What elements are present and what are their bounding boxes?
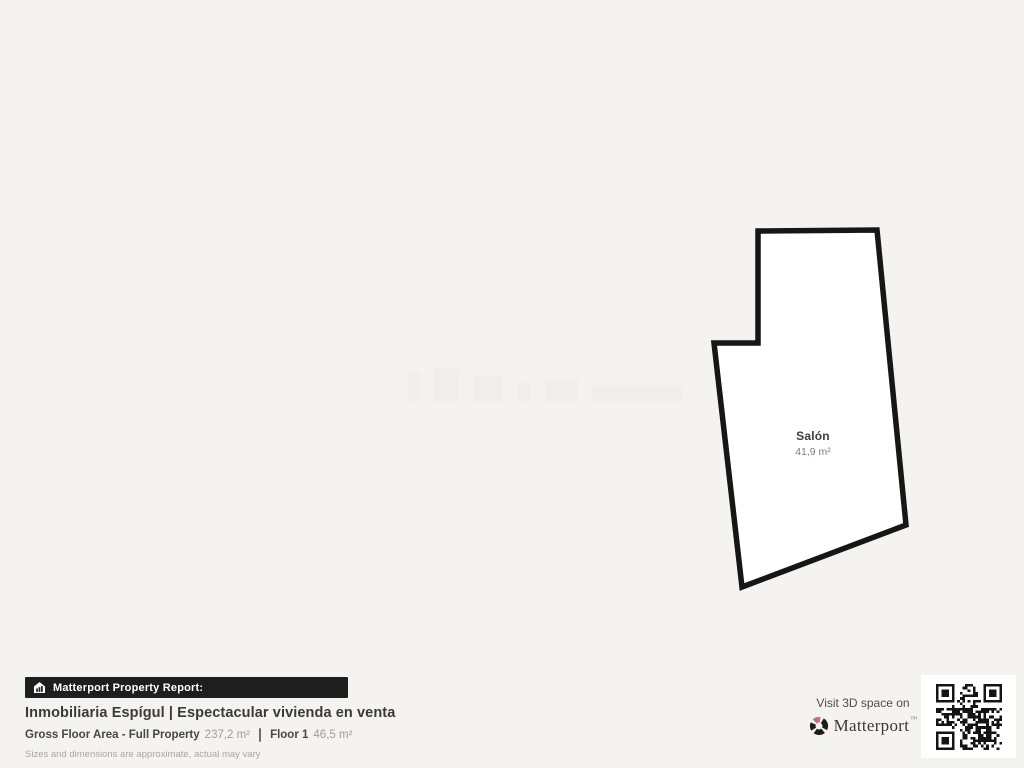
room-area: 41,9 m² [795, 446, 831, 459]
report-badge-label: Matterport Property Report: [53, 682, 203, 694]
qr-canvas [936, 684, 1002, 750]
floor-plan-page: Salón 41,9 m² Matterport Property Report… [0, 0, 1024, 768]
property-title: Inmobiliaria Espígul | Espectacular vivi… [25, 705, 445, 721]
trademark-mark: ™ [910, 715, 917, 723]
stat-value-gross-floor-area: 237,2 m² [205, 729, 250, 741]
matterport-logo-icon [809, 716, 829, 736]
stat-value-floor-1: 46,5 m² [313, 729, 352, 741]
matterport-brand: Matterport™ [808, 716, 918, 736]
room-name: Salón [795, 429, 831, 444]
visit-3d-text: Visit 3D space on [808, 696, 918, 710]
room-label-salon: Salón 41,9 m² [795, 429, 831, 459]
room-outline-salon [714, 230, 906, 587]
report-info: Matterport Property Report: Inmobiliaria… [25, 677, 445, 760]
qr-code [921, 675, 1016, 758]
stat-label-gross-floor-area: Gross Floor Area - Full Property [25, 729, 200, 741]
matterport-cta: Visit 3D space on Matterport™ [808, 696, 918, 736]
stats-divider [259, 728, 261, 742]
matterport-wordmark: Matterport™ [834, 716, 918, 736]
house-chart-icon [33, 681, 46, 694]
floor-plan [0, 0, 1024, 768]
report-badge: Matterport Property Report: [25, 677, 348, 698]
floor-stats: Gross Floor Area - Full Property 237,2 m… [25, 728, 445, 742]
disclaimer: Sizes and dimensions are approximate, ac… [25, 749, 445, 760]
stat-label-floor-1: Floor 1 [270, 729, 308, 741]
